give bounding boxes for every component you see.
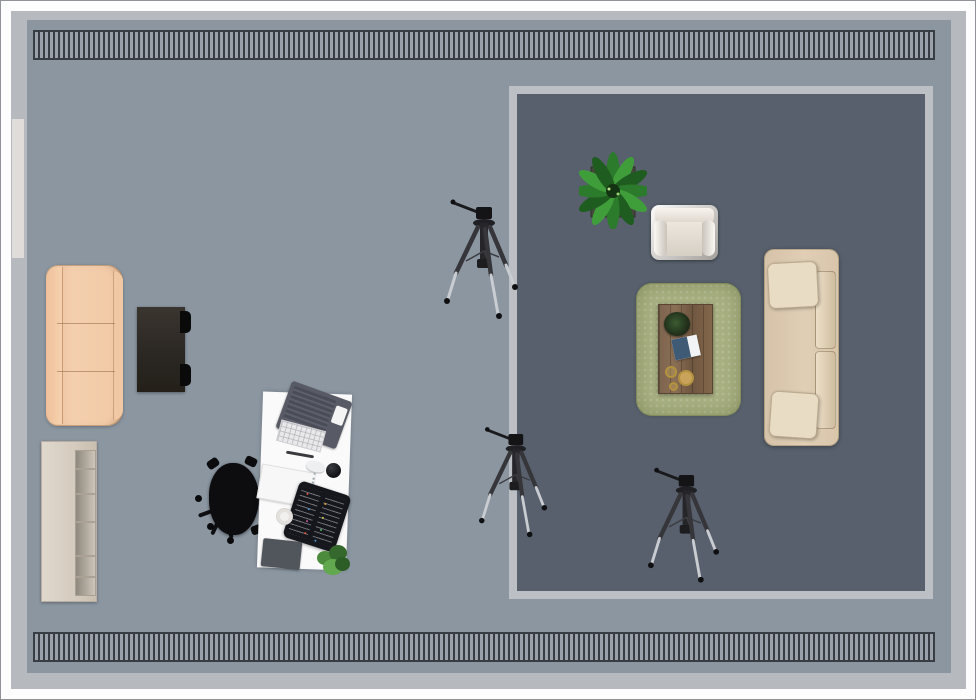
- camera-tripod[interactable]: [648, 461, 721, 587]
- camera-tripod[interactable]: [479, 419, 549, 543]
- floor-plan-canvas: [0, 0, 976, 700]
- camera-tripod[interactable]: [444, 193, 520, 323]
